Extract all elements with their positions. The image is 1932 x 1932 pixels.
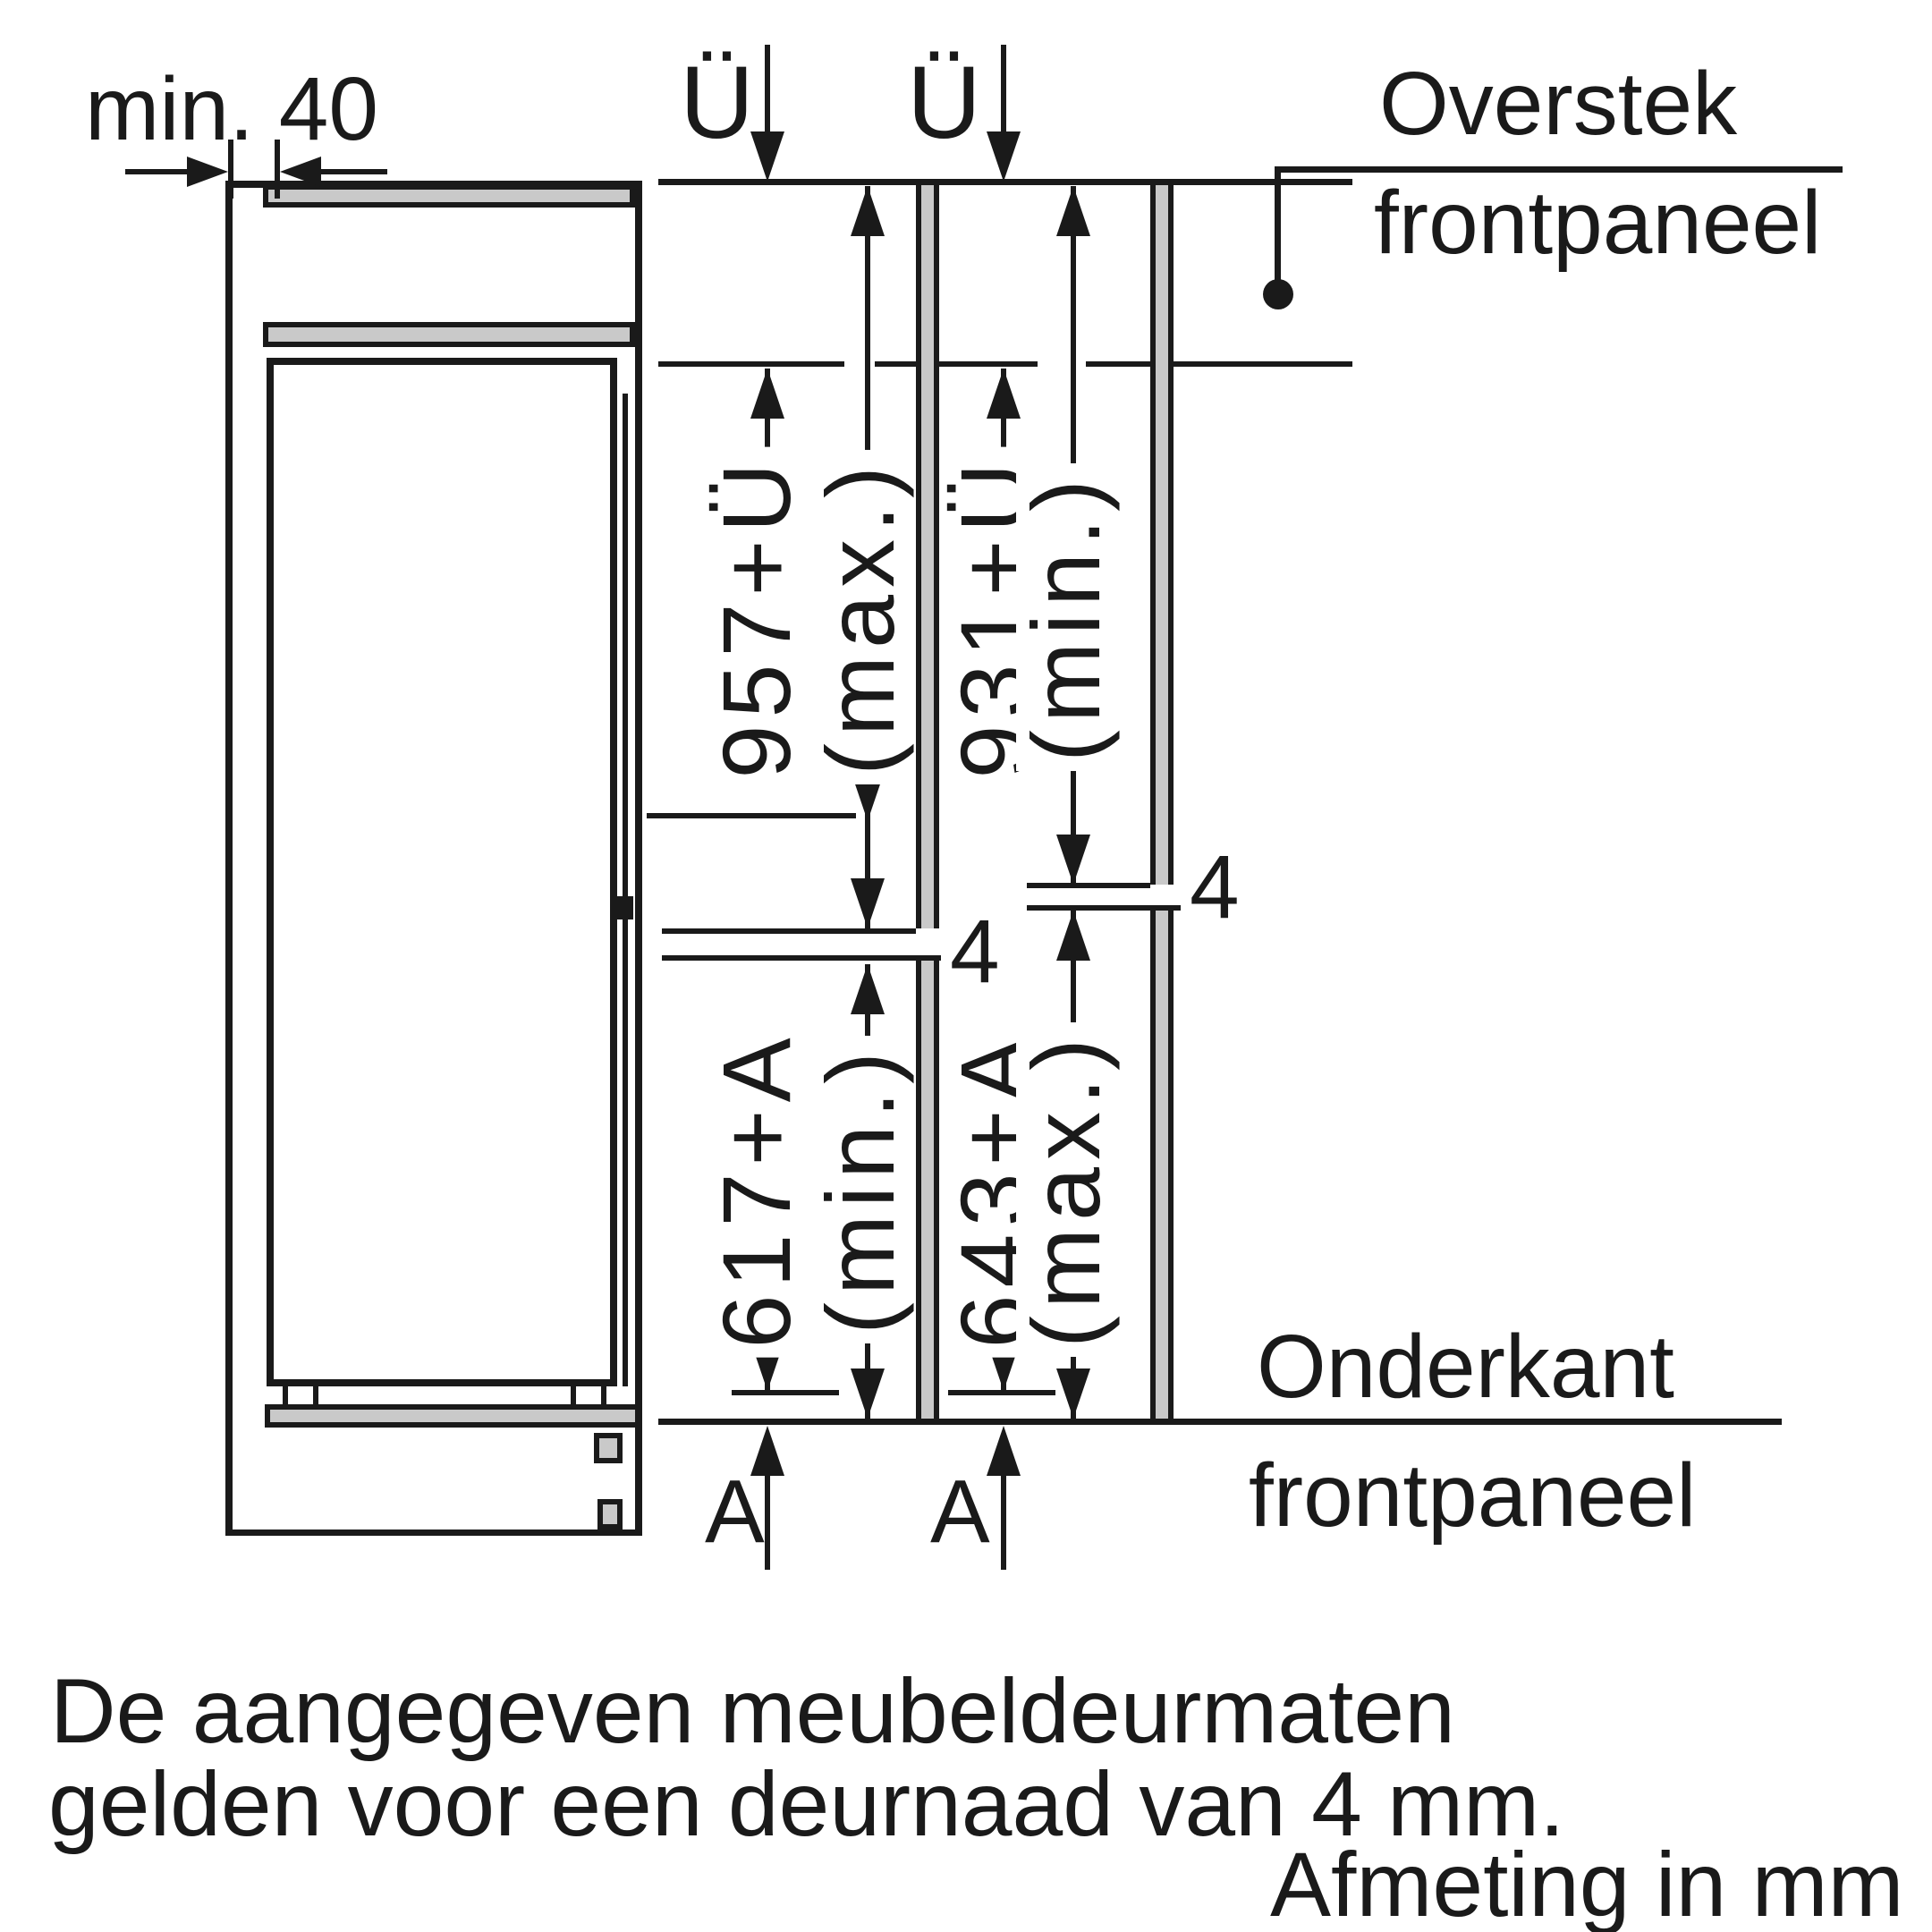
u-symbol-left: Ü <box>680 52 754 155</box>
appliance-top-line-seg <box>1086 361 1150 367</box>
installation-diagram: min. 40 4 4 Ü A Ü <box>0 0 1932 1932</box>
dim-arrowhead <box>1056 1368 1090 1419</box>
gap-4-label-right: 4 <box>1190 843 1240 932</box>
cabinet-top-panel-bar <box>263 184 635 208</box>
u-arrowhead-left <box>750 131 784 182</box>
door-panel-max-lower <box>916 955 939 1419</box>
u-arrow-line-left <box>765 45 770 131</box>
min-40-arrowhead-left <box>280 157 321 187</box>
note-line1: De aangegeven meubeldeurmaten <box>50 1665 1455 1757</box>
dim-arrowhead <box>1056 186 1090 236</box>
door-panel-min-upper <box>1150 185 1174 885</box>
overstek-label-line1: Overstek <box>1379 59 1737 148</box>
onderkant-label-line2: frontpaneel <box>1249 1451 1696 1540</box>
upper-door-end-tick-left <box>647 813 856 818</box>
units-note: Afmeting in mm <box>1270 1839 1904 1930</box>
dim-label-upper-max-qual: (max.) <box>810 450 911 784</box>
min-40-arrowhead-right <box>187 157 228 187</box>
min-40-arrow-line <box>319 169 387 174</box>
appliance-top-line-seg <box>939 361 1038 367</box>
u-arrowhead-right <box>987 131 1021 182</box>
door-foot-tick <box>601 1386 606 1406</box>
a-arrow-line-right <box>1001 1476 1006 1570</box>
cabinet-left-edge <box>225 181 233 1536</box>
u-symbol-right: Ü <box>907 52 981 155</box>
dim-arrowhead <box>987 369 1021 419</box>
adjuster-foot-lower <box>597 1499 623 1529</box>
onderkant-label-line1: Onderkant <box>1257 1322 1674 1411</box>
a-symbol-right: A <box>930 1467 990 1556</box>
dim-arrowhead <box>851 1368 885 1419</box>
cabinet-bottom-edge <box>225 1529 642 1536</box>
door-panel-min-lower <box>1150 911 1174 1419</box>
door-foot-tick <box>571 1386 576 1406</box>
gap-line-right-lower <box>1027 905 1181 911</box>
a-arrow-line-left <box>765 1476 770 1570</box>
lower-door-end-tick-left <box>732 1390 839 1395</box>
door-foot-tick <box>313 1386 318 1406</box>
cabinet-right-edge <box>635 181 642 1536</box>
dim-label-lower-min: 617+A <box>707 1021 807 1357</box>
adjuster-foot-upper <box>594 1433 623 1463</box>
gap-line-left-upper <box>662 928 916 934</box>
door-panel-max-upper <box>916 185 939 928</box>
dim-label-upper-max: 957+Ü <box>707 446 807 787</box>
overstek-leader-v <box>1275 166 1281 284</box>
frontpanel-bottom-line <box>658 1419 1782 1425</box>
door-side-line-lower <box>623 919 628 1386</box>
cabinet-vent-bar <box>263 322 635 347</box>
dim-arrowhead <box>1056 835 1090 885</box>
appliance-door-front <box>267 358 617 1386</box>
appliance-top-line-seg <box>875 361 916 367</box>
a-arrowhead-right <box>987 1426 1021 1476</box>
min-40-tick <box>228 140 233 199</box>
appliance-top-line-seg <box>1174 361 1352 367</box>
overstek-leader-h <box>1275 166 1843 173</box>
dim-label-lower-min-qual: (min.) <box>810 1036 911 1343</box>
min-40-arrow-line <box>125 169 191 174</box>
door-side-line-upper <box>623 394 628 896</box>
dim-arrowhead <box>851 878 885 928</box>
a-symbol-left: A <box>705 1467 765 1556</box>
u-arrow-line-right <box>1001 45 1006 131</box>
dim-arrowhead <box>750 369 784 419</box>
door-foot-tick <box>283 1386 288 1406</box>
overstek-label-line2: frontpaneel <box>1374 178 1821 267</box>
plinth-bar <box>265 1404 640 1428</box>
appliance-top-line-seg <box>658 361 844 367</box>
gap-line-left-lower <box>662 955 941 961</box>
dim-arrowhead <box>851 964 885 1014</box>
gap-4-label-left: 4 <box>950 907 1000 996</box>
dim-label-lower-max-qual: (max.) <box>1016 1022 1116 1357</box>
dim-label-upper-min-qual: (min.) <box>1016 463 1116 771</box>
door-hinge-notch <box>617 896 633 919</box>
dim-arrowhead <box>1056 911 1090 961</box>
dim-arrowhead <box>851 186 885 236</box>
overstek-leader-dot <box>1263 279 1293 309</box>
